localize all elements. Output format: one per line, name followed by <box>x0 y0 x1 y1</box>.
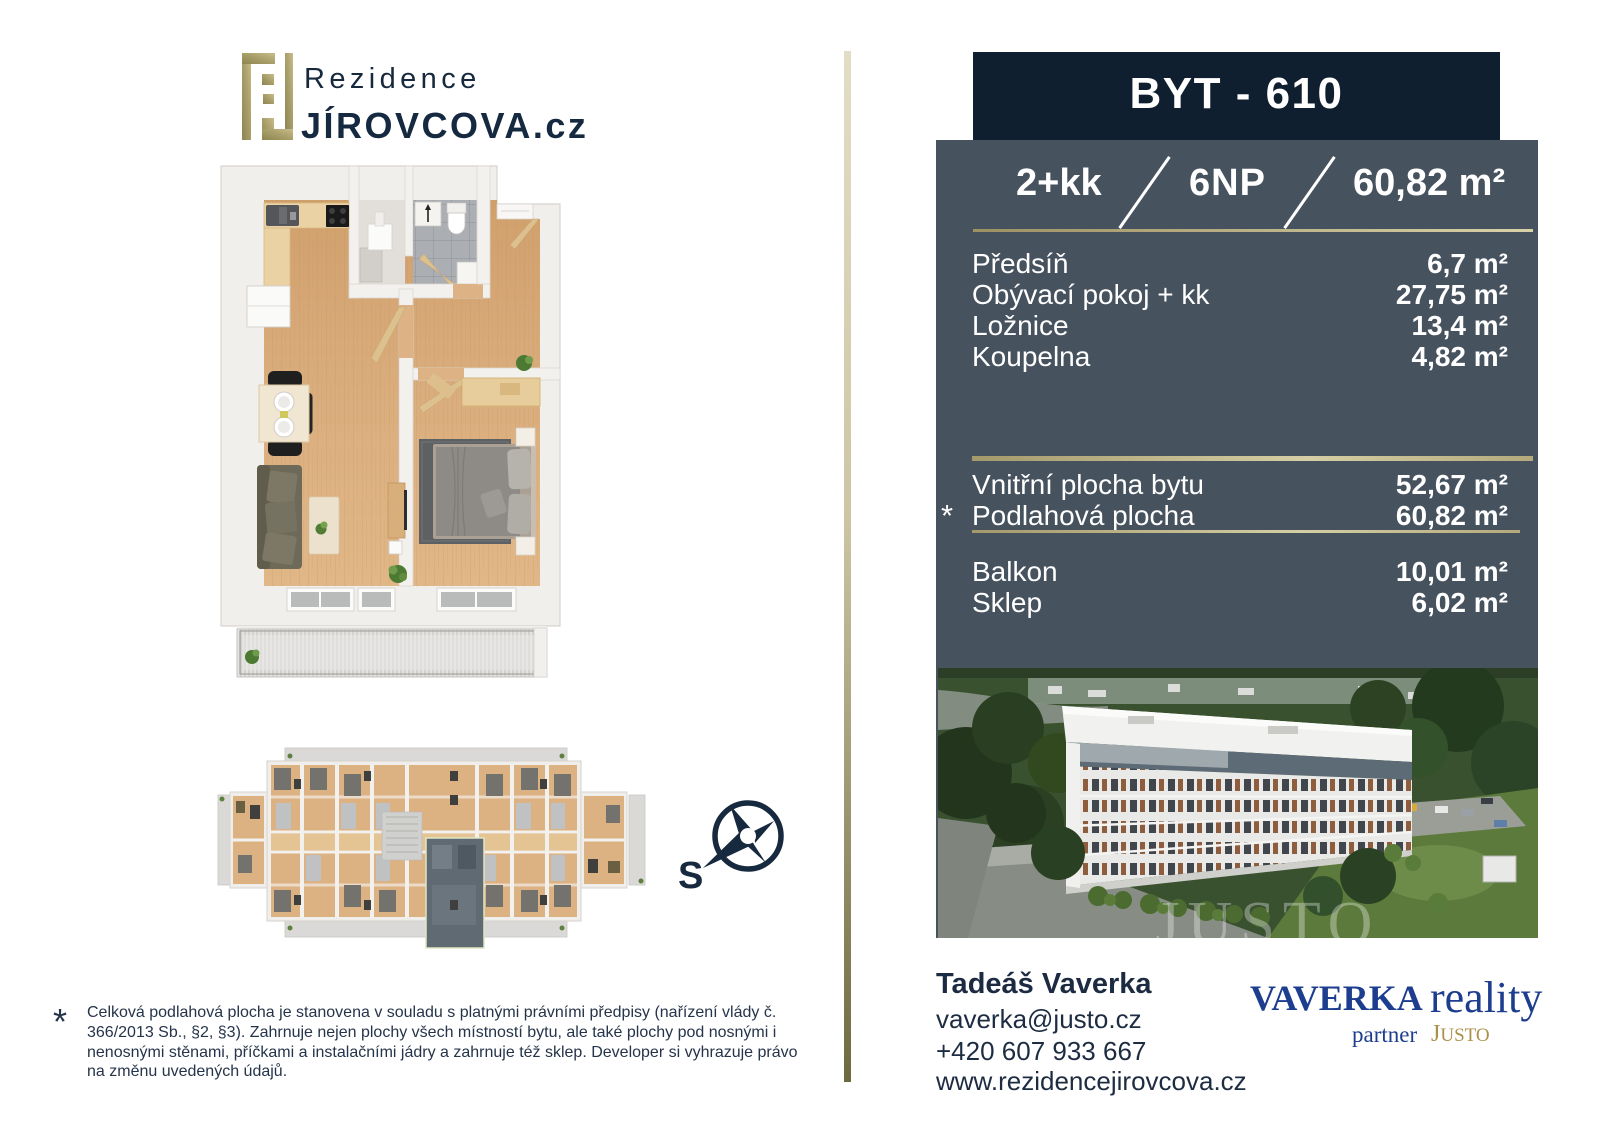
svg-text:JUSTO: JUSTO <box>1156 890 1381 938</box>
svg-text:S: S <box>678 855 703 897</box>
